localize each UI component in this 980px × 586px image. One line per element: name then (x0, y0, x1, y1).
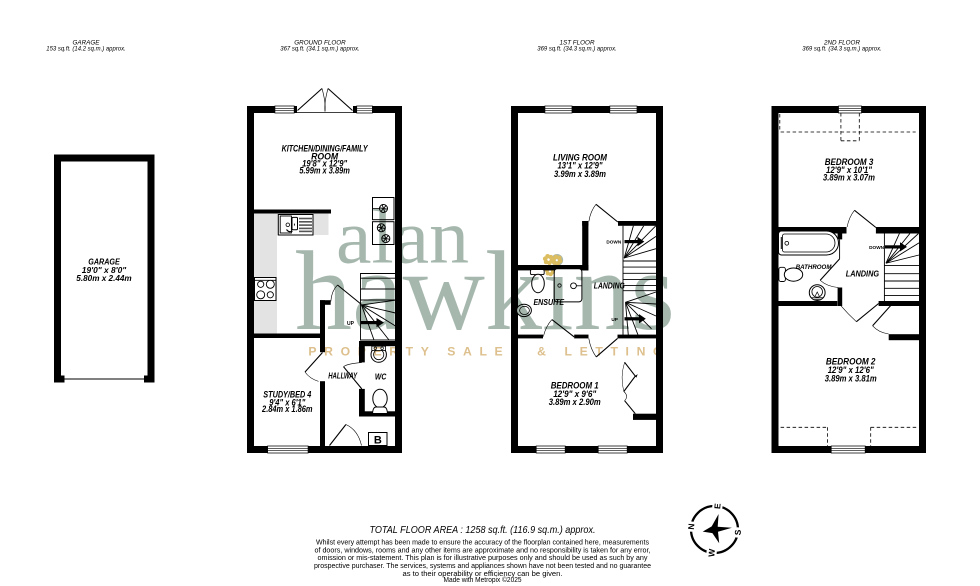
svg-text:3.89m x 3.07m: 3.89m x 3.07m (823, 173, 875, 183)
svg-text:LANDING: LANDING (846, 269, 880, 279)
svg-text:Made with Metropix ©2025: Made with Metropix ©2025 (444, 576, 522, 584)
svg-text:3.99m x 3.89m: 3.99m x 3.89m (554, 169, 606, 179)
svg-text:HALLWAY: HALLWAY (328, 371, 358, 380)
svg-text:TOTAL FLOOR AREA : 1258 sq.ft.: TOTAL FLOOR AREA : 1258 sq.ft. (116.9 sq… (370, 525, 596, 536)
svg-text:DOWN: DOWN (869, 245, 884, 250)
svg-text:369 sq.ft. (34.3 sq.m.) approx: 369 sq.ft. (34.3 sq.m.) approx. (537, 46, 617, 53)
svg-text:B: B (374, 435, 382, 447)
svg-text:omission or mis-statement. Thi: omission or mis-statement. This plan is … (318, 555, 649, 562)
svg-text:Whilst every attempt has been: Whilst every attempt has been made to en… (316, 540, 650, 547)
svg-text:BATHROOM: BATHROOM (796, 264, 832, 271)
svg-text:WC: WC (375, 373, 387, 382)
svg-text:369 sq.ft. (34.3 sq.m.) approx: 369 sq.ft. (34.3 sq.m.) approx. (802, 46, 882, 53)
svg-text:hawkins: hawkins (295, 229, 675, 354)
svg-text:153 sq.ft. (14.2 sq.m.) approx: 153 sq.ft. (14.2 sq.m.) approx. (46, 45, 126, 52)
svg-text:5.99m x 3.89m: 5.99m x 3.89m (299, 165, 350, 175)
svg-text:5.80m x 2.44m: 5.80m x 2.44m (76, 273, 132, 283)
svg-text:3.89m x 2.90m: 3.89m x 2.90m (549, 397, 601, 407)
svg-text:N: N (686, 523, 696, 530)
svg-text:PROPERTY SALES & LETTING: PROPERTY SALES & LETTING (308, 344, 668, 358)
svg-text:of doors, windows, rooms and a: of doors, windows, rooms and any other i… (315, 547, 651, 554)
svg-text:3.89m x 3.81m: 3.89m x 3.81m (825, 374, 877, 384)
svg-text:2.84m x 1.86m: 2.84m x 1.86m (261, 404, 312, 414)
svg-text:367 sq.ft. (34.1 sq.m.) approx: 367 sq.ft. (34.1 sq.m.) approx. (280, 46, 360, 53)
svg-text:prospective purchaser. The ser: prospective purchaser. The services, sys… (314, 563, 651, 570)
